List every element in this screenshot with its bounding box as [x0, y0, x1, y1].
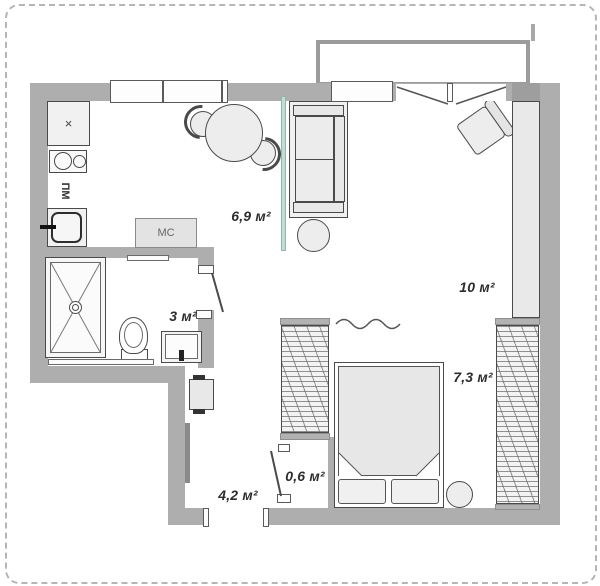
hob-cabinet-mark: × — [48, 102, 89, 145]
living-area-label: 10 м² — [459, 279, 494, 295]
bathroom-threshold-strip — [48, 359, 154, 365]
sofa-cushion-divider — [296, 159, 333, 160]
kitchen-window — [110, 80, 228, 103]
kitchen-window-mullion — [162, 80, 164, 103]
kitchen-faucet — [40, 225, 56, 229]
shower-drain-inner — [72, 304, 79, 311]
bath-door-jamb-top — [198, 265, 214, 274]
kitchen-cabinet: × — [47, 101, 90, 146]
closet-door-jamb-bottom — [277, 494, 291, 503]
toilet-seat — [124, 322, 143, 348]
hallway-area-label: 4,2 м² — [218, 487, 258, 503]
wall-right — [540, 83, 560, 525]
towel-rail — [127, 255, 169, 261]
bed-blanket — [338, 366, 440, 476]
balcony-door-center-stile — [447, 83, 453, 102]
wall-hall-left — [168, 366, 185, 525]
washing-machine-box: МС — [135, 218, 197, 248]
entrance-jamb-right — [263, 508, 269, 527]
bedroom-wardrobe-left — [281, 325, 329, 433]
entrance-opening — [207, 508, 265, 525]
closet-area-label: 0,6 м² — [285, 468, 325, 484]
bath-door-jamb-bottom — [196, 310, 212, 319]
hob-burner-small — [73, 155, 86, 168]
bathroom-area-label: 3 м² — [169, 308, 197, 324]
sofa-cushions — [295, 116, 334, 202]
bed-pillow-right — [391, 479, 439, 504]
floor-plan: × ПМ МС — [0, 0, 600, 586]
washing-machine-label: МС — [157, 227, 174, 239]
dishwasher-label: ПМ — [52, 178, 78, 204]
bed-pillow-left — [338, 479, 386, 504]
bedroom-wardrobe-right-cap-bottom — [495, 504, 540, 510]
entrance-jamb-left — [203, 508, 209, 527]
washbasin-faucet — [179, 350, 184, 361]
sofa-backrest — [334, 116, 345, 202]
balcony-divider-tick — [531, 24, 535, 41]
hob-burner-large — [54, 152, 72, 170]
hall-cabinet-hinge-top — [193, 375, 205, 380]
hall-cabinet — [189, 379, 214, 410]
bedside-table — [446, 481, 473, 508]
dining-table — [205, 104, 263, 162]
living-pouf — [297, 219, 330, 252]
bedroom-wardrobe-left-cap-top — [280, 318, 330, 325]
kitchen-area-label: 6,9 м² — [231, 208, 271, 224]
bedroom-wardrobe-right — [496, 325, 539, 504]
closet-door-jamb-top — [278, 444, 290, 452]
hall-cabinet-hinge-bottom — [193, 409, 205, 414]
glass-partition — [281, 96, 286, 251]
bedroom-area-label: 7,3 м² — [453, 369, 493, 385]
balcony-outline — [316, 40, 530, 86]
living-wardrobe — [512, 101, 540, 318]
hall-mirror — [185, 423, 190, 483]
living-window — [331, 81, 393, 102]
sofa-armrest-bottom — [293, 202, 344, 213]
bedroom-wardrobe-left-cap-bottom — [280, 433, 330, 440]
sofa-armrest-top — [293, 105, 344, 116]
bedroom-wardrobe-right-cap-top — [495, 318, 540, 325]
kitchen-window-mullion-2 — [221, 80, 223, 103]
wall-bathroom-bottom — [30, 366, 185, 383]
